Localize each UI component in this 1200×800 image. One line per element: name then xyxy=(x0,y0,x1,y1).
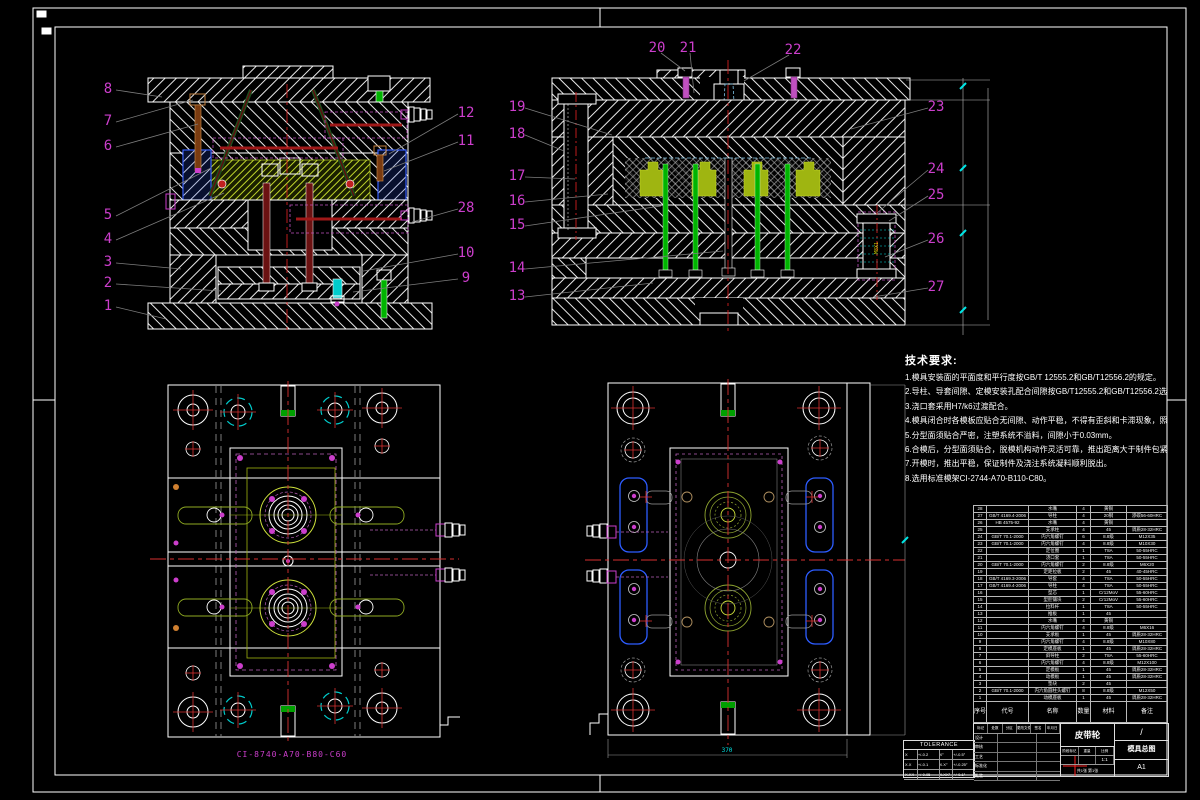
bom-row: 28水嘴 4黄铜 xyxy=(974,506,1168,513)
bom-row: 23GB/T 70.1-2000内六角螺钉 48.8级M10X30 xyxy=(974,541,1168,548)
bom-row: 3垫块 245 xyxy=(974,681,1168,688)
title-block-middle: 皮带轮 阶段标记重量比例 1:1 共1张 第1张 xyxy=(1061,724,1115,776)
balloon-7: 7 xyxy=(104,113,112,129)
bom-row: 20GB/T 70.1-2000内六角螺钉 28.8级M6X20 xyxy=(974,562,1168,569)
balloon-27: 27 xyxy=(928,279,945,295)
balloon-23: 23 xyxy=(928,99,945,115)
drawing-name: 模具总图 xyxy=(1115,741,1168,760)
balloon-9: 9 xyxy=(462,270,470,286)
balloon-13: 13 xyxy=(509,288,526,304)
signature-row: 设计 xyxy=(974,734,1060,743)
revision-label: 标记 xyxy=(974,724,988,733)
title-block: 标记 处数 分区 更改文件号 签名 年月日 设计 审核 工艺 xyxy=(973,723,1169,777)
drawing-sheet: 8 7 6 5 4 3 2 1 12 11 28 10 9 20 21 22 1… xyxy=(0,0,1200,800)
dimension-lines-right xyxy=(906,78,990,335)
signature-row: 工艺 xyxy=(974,753,1060,762)
technical-notes: 技术要求: 1.模具安装面的平面度和平行度按GB/T 12555.2和GB/T1… xyxy=(905,352,1167,486)
section-view-right xyxy=(552,60,910,335)
parts-list-table: 28水嘴 4黄铜 27GB/T 4169.4-2006导柱 420钢渗碳56-6… xyxy=(973,505,1168,723)
tolerance-table: TOLERANCE X+/-0.2 X°+/-0.5° X.X+/-0.1 X.… xyxy=(903,740,975,778)
bom-row: 4动模板 145调质28-32HRC xyxy=(974,674,1168,681)
a-plate-b xyxy=(552,100,905,137)
note-line: 6.合模后，分型面须贴合，脱模机构动作灵活可靠，推出距离大于制件包紧高度。 xyxy=(905,443,1167,457)
scale-value: 1:1 xyxy=(1096,756,1114,764)
bom-row: 15型腔镶块 2Cr12MoV55-60HRC xyxy=(974,597,1168,604)
sheet-size: A1 xyxy=(1115,760,1168,776)
balloon-12: 12 xyxy=(458,105,475,121)
balloon-20: 20 xyxy=(649,40,666,56)
signature-row: 标准化 xyxy=(974,762,1060,771)
balloon-28: 28 xyxy=(458,200,475,216)
balloon-18: 18 xyxy=(509,126,526,142)
signature-row: 批准 xyxy=(974,772,1060,781)
bom-row: 1动模座板 145调质28-32HRC xyxy=(974,695,1168,702)
dimension-370: 370 xyxy=(722,747,733,754)
revision-header-row: 标记 处数 分区 更改文件号 签名 年月日 xyxy=(974,724,1060,734)
bottom-clamp-plate xyxy=(148,303,432,329)
bom-row: 22定位圈 1T8A50-55HRC xyxy=(974,548,1168,555)
stud-rows xyxy=(640,491,818,628)
balloon-14: 14 xyxy=(509,260,526,276)
note-line: 2.导柱、导套间隙、定模安装孔配合间隙按GB/T12555.2和GB/T1255… xyxy=(905,385,1167,399)
bom-row: 17GB/T 4169.4-2006导柱 4T8A50-55HRC xyxy=(974,583,1168,590)
bom-row: 26HB 4575-92水嘴 4黄铜 xyxy=(974,520,1168,527)
notes-title: 技术要求: xyxy=(905,352,1167,368)
balloon-22: 22 xyxy=(785,42,802,58)
bom-row: 2GB/T 70.1-2000内六角圆柱头螺钉 88.8级M12X50 xyxy=(974,688,1168,695)
bom-row: 25支承柱 445调质28-32HRC xyxy=(974,527,1168,534)
tolerance-row: X.X+/-0.1 X.X°+/-0.25° xyxy=(904,760,974,770)
title-block-right: / 模具总图 A1 xyxy=(1115,724,1168,776)
balloon-10: 10 xyxy=(458,245,475,261)
revision-label: 签名 xyxy=(1031,724,1045,733)
bom-row: 13推板 145 xyxy=(974,611,1168,618)
balloon-6: 6 xyxy=(104,138,112,154)
thread-callout: M8X1 xyxy=(874,242,880,254)
balloon-5: 5 xyxy=(104,207,112,223)
tolerance-row: X.XX+/-0.05 X.XX°+/-0.1° xyxy=(904,770,974,780)
crosshairs-d xyxy=(611,386,841,732)
bom-row: 14拉料杆 1T8A50-55HRC xyxy=(974,604,1168,611)
section-view-left xyxy=(148,66,432,333)
tolerance-row: X+/-0.2 X°+/-0.5° xyxy=(904,750,974,760)
balloon-8: 8 xyxy=(104,81,112,97)
stage-weight-scale-values: 1:1 xyxy=(1061,756,1114,765)
material-cell: / xyxy=(1115,724,1168,741)
bom-row: 16型芯 1Cr12MoV55-60HRC xyxy=(974,590,1168,597)
bom-row: 18GB/T 4169.3-2006导套 4T8A50-55HRC xyxy=(974,576,1168,583)
revision-label: 年月日 xyxy=(1046,724,1060,733)
a-plate xyxy=(170,102,408,153)
bom-row: 19定距拉板 24540-45HRC xyxy=(974,569,1168,576)
bom-row: 5定模板 145调质28-32HRC xyxy=(974,667,1168,674)
balloon-16: 16 xyxy=(509,193,526,209)
balloon-4: 4 xyxy=(104,231,112,247)
note-line: 5.分型面须贴合严密，注塑系统不溢料，间隙小于0.03mm。 xyxy=(905,429,1167,443)
revision-sign-grid: 标记 处数 分区 更改文件号 签名 年月日 设计 审核 工艺 xyxy=(974,724,1061,776)
balloon-11: 11 xyxy=(458,133,475,149)
note-line: 4.模具闭合时各模板应贴合无间隙、动作平稳，不得有歪斜和卡滞现象，照各制件须符合… xyxy=(905,414,1167,428)
bom-row: 6内六角螺钉 48.8级M12X100 xyxy=(974,660,1168,667)
balloon-25: 25 xyxy=(928,187,945,203)
balloon-1: 1 xyxy=(104,298,112,314)
revision-label: 更改文件号 xyxy=(1017,724,1031,733)
balloon-15: 15 xyxy=(509,217,526,233)
blue-slots xyxy=(620,478,833,644)
plan-view-left xyxy=(150,381,465,741)
stage-weight-scale-headers: 阶段标记重量比例 xyxy=(1061,747,1114,756)
bom-row: 27GB/T 4169.4-2006导柱 420钢渗碳56-60HRC xyxy=(974,513,1168,520)
balloon-24: 24 xyxy=(928,161,945,177)
sheet-count-note: 共1张 第1张 xyxy=(1061,765,1114,776)
bom-row: 12水嘴 4黄铜 xyxy=(974,618,1168,625)
locating-boss xyxy=(243,66,333,78)
bom-row: 8定模座板 145调质28-32HRC xyxy=(974,646,1168,653)
sprue-bushing xyxy=(714,84,744,100)
bom-row: 24GB/T 70.1-2000内六角螺钉 68.8级M12X35 xyxy=(974,534,1168,541)
bom-row: 9内六角螺钉 48.8级M10X80 xyxy=(974,639,1168,646)
plan-view-right xyxy=(585,379,908,758)
balloon-3: 3 xyxy=(104,254,112,270)
part-name: 皮带轮 xyxy=(1061,724,1114,747)
note-line: 7.开模时，推出平稳，保证制件及浇注系统凝料顺利脱出。 xyxy=(905,457,1167,471)
bom-row: 7斜导柱 2T8A55-60HRC xyxy=(974,653,1168,660)
bom-row: 10支承板 145调质28-32HRC xyxy=(974,632,1168,639)
revision-label: 处数 xyxy=(988,724,1002,733)
balloon-17: 17 xyxy=(509,168,526,184)
tolerance-title: TOLERANCE xyxy=(904,741,974,750)
balloon-26: 26 xyxy=(928,231,945,247)
bom-header-row: 序号代号名称 数量材料备注 xyxy=(974,702,1168,723)
note-line: 8.选用标准模架CI-2744-A70-B110-C80。 xyxy=(905,472,1167,486)
note-line: 3.浇口套采用H7/k6过渡配合。 xyxy=(905,400,1167,414)
signature-row: 审核 xyxy=(974,743,1060,752)
sprue-puller xyxy=(331,279,344,307)
puller-rod xyxy=(725,158,732,270)
balloon-2: 2 xyxy=(104,275,112,291)
balloon-21: 21 xyxy=(680,40,697,56)
slide-slots xyxy=(178,507,404,616)
revision-label: 分区 xyxy=(1003,724,1017,733)
spacer-left xyxy=(170,255,216,303)
mold-base-code-label: CI-8740-A70-B80-C60 xyxy=(237,750,348,759)
bom-row: 11内六角螺钉 48.8级M6X16 xyxy=(974,625,1168,632)
plan-fittings-left xyxy=(587,524,668,583)
balloon-19: 19 xyxy=(509,99,526,115)
note-line: 1.模具安装面的平面度和平行度按GB/T 12555.2和GB/T12556.2… xyxy=(905,371,1167,385)
slot-screws xyxy=(629,491,826,626)
plan-d-dimensions xyxy=(608,385,908,758)
bom-row: 21浇口套 1T8A50-55HRC xyxy=(974,555,1168,562)
